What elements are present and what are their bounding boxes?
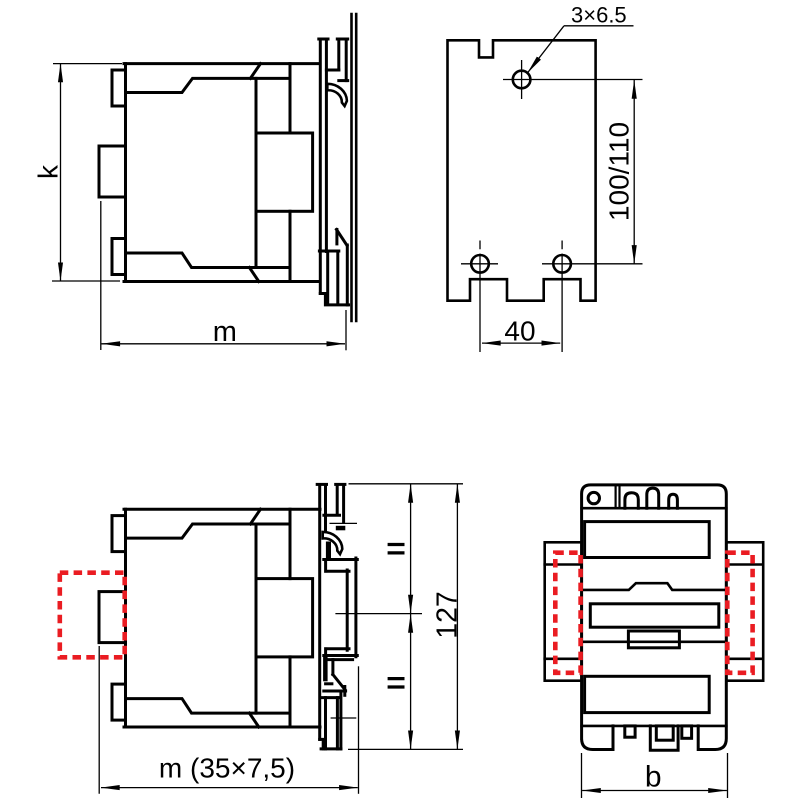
svg-text:m (35×7,5): m (35×7,5): [159, 753, 295, 784]
svg-text:3×6.5: 3×6.5: [571, 3, 627, 28]
svg-text:100/110: 100/110: [603, 122, 634, 221]
svg-text:40: 40: [504, 316, 535, 347]
svg-text:b: b: [645, 760, 662, 793]
svg-text:127: 127: [431, 591, 463, 639]
svg-text:k: k: [33, 164, 64, 179]
svg-text:m: m: [213, 316, 237, 348]
